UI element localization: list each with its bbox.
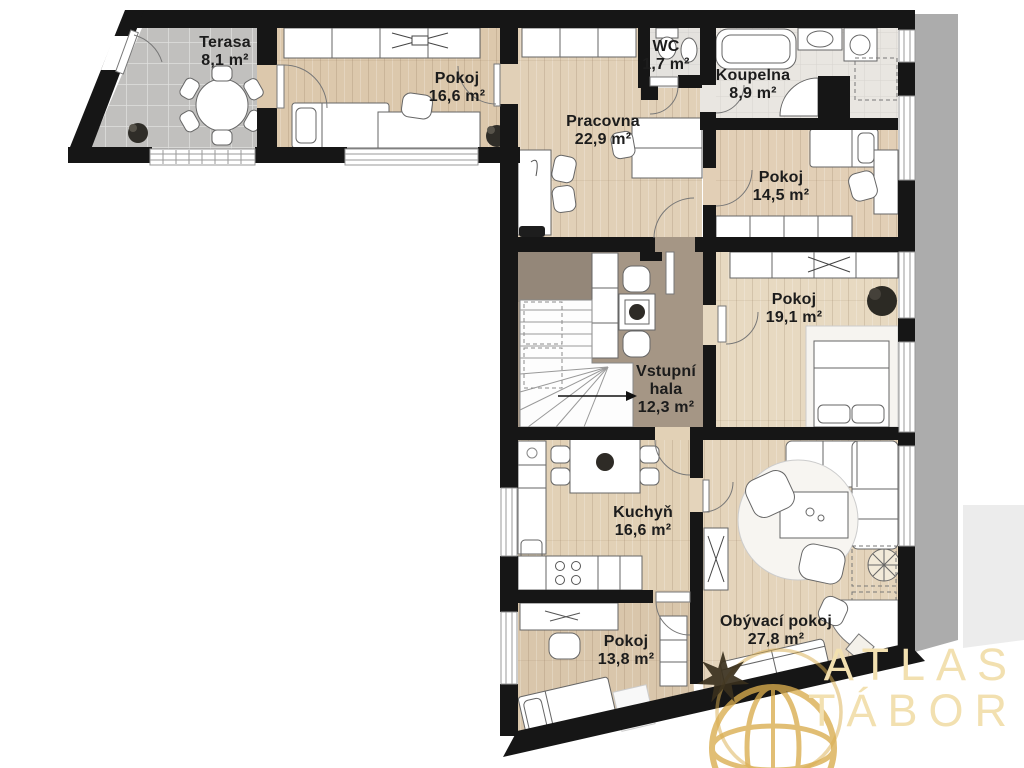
side-strip: [915, 14, 958, 652]
window: [345, 149, 478, 165]
washing-machine: [844, 28, 877, 61]
counter-bottom: [518, 556, 642, 590]
pillow: [858, 133, 874, 163]
window: [501, 488, 517, 556]
room-area: 16,6 m²: [613, 522, 673, 540]
desk-small: [518, 150, 551, 235]
room-name: Pokoj: [429, 70, 486, 88]
room-label-koupelna: Koupelna 8,9 m²: [716, 67, 791, 103]
chair: [551, 468, 570, 485]
room-name: WC: [642, 38, 689, 56]
terrace-railing: [150, 149, 255, 165]
room-area: 12,3 m²: [636, 399, 696, 417]
room-label-obyvaci-pokoj: Obývací pokoj 27,8 m²: [720, 613, 832, 649]
chair: [551, 446, 570, 463]
room-area: 22,9 m²: [566, 131, 640, 149]
room-name: Obývací pokoj: [720, 613, 832, 631]
room-area: 8,1 m²: [199, 52, 251, 70]
wardrobe: [522, 28, 636, 57]
room-name: hala: [636, 381, 696, 399]
room-area: 13,8 m²: [598, 651, 655, 669]
watermark-line-1: ATLAS: [808, 642, 1018, 688]
cabinet: [660, 616, 687, 686]
window: [899, 30, 915, 62]
room-area: 8,9 m²: [716, 85, 791, 103]
wardrobe: [284, 28, 480, 58]
pillow: [296, 108, 316, 143]
room-name: Kuchyň: [613, 504, 673, 522]
room-name: Vstupní: [636, 363, 696, 381]
dark-item: [519, 226, 545, 237]
pillow: [852, 405, 884, 423]
room-area: 14,5 m²: [753, 187, 810, 205]
room-area: 19,1 m²: [766, 309, 823, 327]
chair: [640, 468, 659, 485]
floor-plan-page: Terasa 8,1 m² Pokoj 16,6 m² Pracovna 22,…: [0, 0, 1024, 768]
room-area: 1,7 m²: [642, 56, 689, 74]
wardrobe: [592, 253, 618, 358]
pillow: [818, 405, 850, 423]
chair: [623, 266, 650, 292]
room-label-wc: WC 1,7 m²: [642, 38, 689, 74]
chair: [549, 633, 580, 659]
room-label-terasa: Terasa 8,1 m²: [199, 34, 251, 70]
room-label-pokoj-13: Pokoj 13,8 m²: [598, 633, 655, 669]
outside-areas: [915, 14, 1024, 652]
chair: [623, 331, 650, 357]
room-name: Terasa: [199, 34, 251, 52]
window: [899, 342, 915, 432]
chair: [551, 185, 576, 214]
plant: [629, 304, 645, 320]
desk: [378, 112, 480, 148]
room-name: Koupelna: [716, 67, 791, 85]
room-label-kuchyn: Kuchyň 16,6 m²: [613, 504, 673, 540]
room-area: 27,8 m²: [720, 631, 832, 649]
watermark-line-2: TÁBOR: [808, 688, 1018, 734]
sofa-corner: [852, 441, 898, 549]
plant: [596, 453, 614, 471]
room-name: Pokoj: [753, 169, 810, 187]
room-label-vstupni-hala: Vstupní hala 12,3 m²: [636, 363, 696, 417]
watermark-text: ATLAS TÁBOR: [808, 642, 1018, 734]
room-name: Pokoj: [766, 291, 823, 309]
window: [899, 96, 915, 180]
room-name: Pracovna: [566, 113, 640, 131]
hall-floor-dark: [518, 252, 592, 302]
room-label-pokoj-14: Pokoj 14,5 m²: [753, 169, 810, 205]
desk: [520, 603, 618, 630]
building-shadow: [963, 505, 1024, 648]
round-table: [196, 79, 248, 131]
room-label-pracovna: Pracovna 22,9 m²: [566, 113, 640, 149]
room-label-pokoj-16: Pokoj 16,6 m²: [429, 70, 486, 106]
room-area: 16,6 m²: [429, 88, 486, 106]
window: [501, 612, 517, 684]
window: [899, 252, 915, 318]
desk: [874, 150, 898, 214]
room-name: Pokoj: [598, 633, 655, 651]
room-label-pokoj-19: Pokoj 19,1 m²: [766, 291, 823, 327]
fridge: [518, 441, 546, 465]
fan-table: [868, 549, 900, 581]
cabinet: [518, 465, 546, 488]
window: [899, 446, 915, 546]
